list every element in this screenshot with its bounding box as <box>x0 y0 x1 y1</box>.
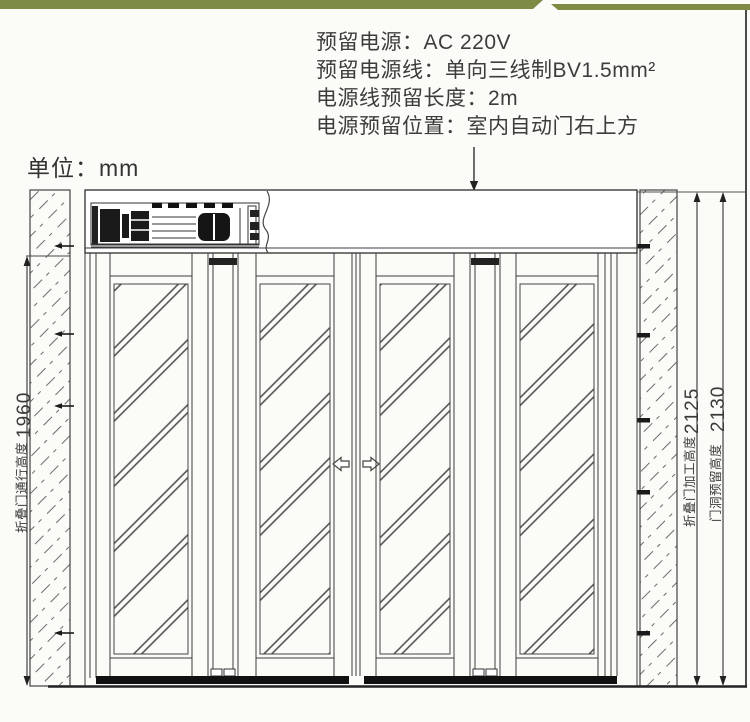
arrow-up-icon <box>694 192 701 202</box>
glass-pane <box>520 284 594 654</box>
top-accent-bar <box>0 0 750 10</box>
svg-text:折叠门通行高度: 折叠门通行高度 <box>14 442 29 533</box>
glass-pane <box>114 284 188 654</box>
glass-pane <box>260 284 330 654</box>
door-panel-3 <box>376 253 454 676</box>
dimension-fabrication-height: 折叠门加工高度 2125 <box>682 192 703 686</box>
svg-text:2130: 2130 <box>708 386 729 432</box>
connector-column-1 <box>208 253 238 676</box>
open-direction-left-icon <box>333 458 349 471</box>
folding-door-technical-diagram: 折叠门通行高度 1960 折叠门加工高度 2125 门洞预留高度 2130 <box>0 0 750 722</box>
glass-pane <box>380 284 450 654</box>
svg-text:1960: 1960 <box>14 392 35 438</box>
power-position-leader-arrow <box>470 147 478 191</box>
arrow-down-icon <box>24 676 31 686</box>
arrow-up-icon <box>720 192 727 202</box>
arrow-down-icon <box>694 676 701 686</box>
dimension-opening-height: 门洞预留高度 2130 <box>708 192 729 686</box>
svg-text:门洞预留高度: 门洞预留高度 <box>708 444 723 522</box>
door-panel-1 <box>110 253 192 676</box>
door-installation-drawing-page: 预留电源：AC 220V 预留电源线：单向三线制BV1.5mm² 电源线预留长度… <box>0 0 750 722</box>
hinge-bracket <box>209 258 237 265</box>
right-wall <box>640 190 677 686</box>
left-wall <box>30 190 70 686</box>
arrow-up-icon <box>24 256 31 266</box>
threshold <box>96 676 617 684</box>
door-panel-4 <box>516 253 598 676</box>
connector-column-2 <box>470 253 500 676</box>
hinge-bracket <box>471 258 499 265</box>
svg-text:折叠门加工高度: 折叠门加工高度 <box>682 436 697 527</box>
arrow-down-icon <box>720 676 727 686</box>
door-operator-mechanism <box>91 203 259 247</box>
open-direction-right-icon <box>363 458 379 471</box>
svg-text:2125: 2125 <box>682 388 703 434</box>
center-meeting-stiles <box>352 253 360 676</box>
door-panel-2 <box>256 253 334 676</box>
